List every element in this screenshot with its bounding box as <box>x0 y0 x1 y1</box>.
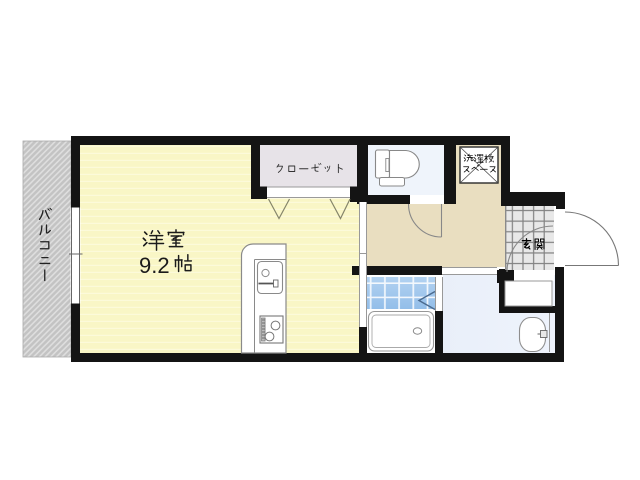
svg-text:9.2: 9.2 <box>139 253 170 278</box>
